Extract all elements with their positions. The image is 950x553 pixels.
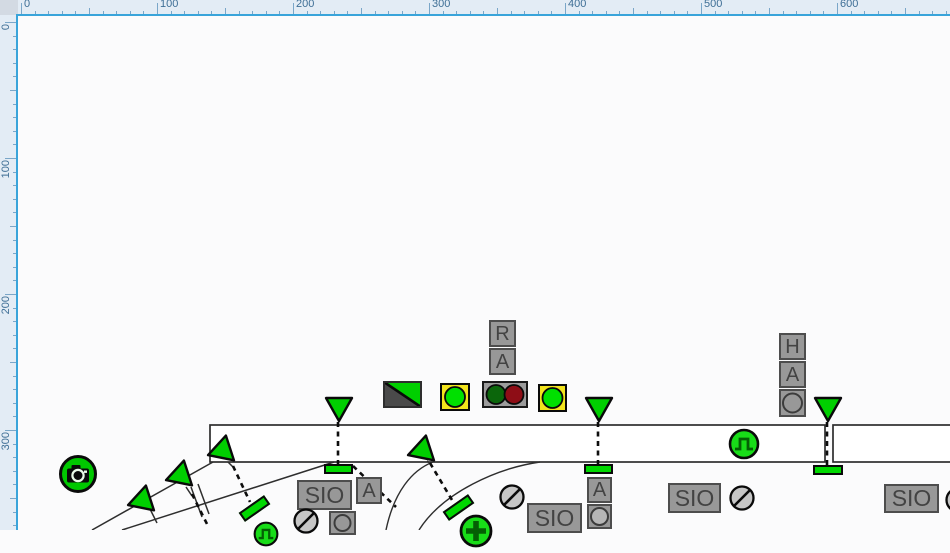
- signal-aspect-pair[interactable]: [482, 381, 528, 413]
- ruler-label: 0: [0, 24, 12, 30]
- label-box-a[interactable]: A: [356, 477, 382, 504]
- ruler-label: 300: [0, 432, 12, 450]
- indicator-circle-box[interactable]: [329, 511, 356, 535]
- label-box-text: H: [785, 337, 799, 357]
- route-bar[interactable]: [584, 464, 613, 474]
- sio-label-text: SIO: [675, 487, 715, 510]
- ruler-label: 400: [568, 0, 586, 10]
- triangle-icon: [584, 396, 614, 423]
- ruler-label: 500: [704, 0, 722, 10]
- label-box-text: R: [495, 324, 509, 344]
- label-box-a[interactable]: A: [779, 361, 806, 388]
- ruler-left: 0100200300: [0, 15, 17, 530]
- track-editor-stage: RAHAAASIOSIOSIOSIO 0100200300400500600 0…: [0, 0, 950, 530]
- shunt-disc-icon[interactable]: [729, 485, 755, 516]
- signal-triangle[interactable]: [324, 396, 354, 423]
- sio-label-box[interactable]: SIO: [884, 484, 939, 513]
- ruler-label: 600: [840, 0, 858, 10]
- ruler-label: 200: [296, 0, 314, 10]
- signal-triangle[interactable]: [813, 396, 843, 423]
- lamp-indicator[interactable]: [538, 384, 567, 417]
- ruler-label: 100: [160, 0, 178, 10]
- label-box-text: A: [496, 352, 509, 372]
- sio-label-text: SIO: [305, 484, 345, 507]
- shunt-disc-icon[interactable]: [293, 508, 319, 539]
- sio-label-text: SIO: [535, 507, 575, 530]
- sio-label-box[interactable]: SIO: [527, 503, 582, 533]
- label-box-r[interactable]: R: [489, 320, 516, 347]
- label-box-text: A: [786, 365, 799, 385]
- ruler-label: 300: [432, 0, 450, 10]
- triangle-icon: [813, 396, 843, 423]
- plus-button[interactable]: [459, 514, 493, 553]
- label-box-text: A: [362, 481, 375, 501]
- ruler-label: 200: [0, 296, 12, 314]
- sio-label-text: SIO: [892, 487, 932, 510]
- canvas-top-edge-highlight: [17, 14, 950, 16]
- circle-indicator-icon: [589, 506, 610, 527]
- circle-indicator-icon: [781, 391, 804, 415]
- signal-triangle[interactable]: [584, 396, 614, 423]
- ruler-label: 100: [0, 160, 12, 178]
- label-box-h[interactable]: H: [779, 333, 806, 360]
- lamp-indicator[interactable]: [440, 383, 470, 416]
- sio-label-box[interactable]: SIO: [668, 483, 721, 513]
- ruler-corner: [0, 0, 18, 15]
- indicator-circle-box[interactable]: [779, 389, 806, 417]
- ruler-top: 0100200300400500600: [18, 0, 950, 15]
- circle-indicator-icon: [331, 513, 354, 533]
- camera-icon[interactable]: [58, 454, 98, 499]
- shunt-disc-icon[interactable]: [945, 487, 950, 518]
- sio-label-box[interactable]: SIO: [297, 480, 352, 510]
- triangle-icon: [324, 396, 354, 423]
- track-lines-layer: [0, 0, 950, 530]
- route-bar[interactable]: [813, 465, 843, 475]
- canvas-left-edge-highlight: [16, 14, 18, 530]
- label-box-text: A: [593, 480, 606, 500]
- pulse-button[interactable]: [728, 428, 760, 465]
- split-state-indicator[interactable]: [383, 381, 422, 413]
- label-box-a[interactable]: A: [587, 477, 612, 503]
- indicator-circle-box[interactable]: [587, 504, 612, 529]
- route-bar[interactable]: [324, 464, 353, 474]
- label-box-a[interactable]: A: [489, 348, 516, 375]
- ruler-label: 0: [24, 0, 30, 10]
- shunt-disc-icon[interactable]: [499, 484, 525, 515]
- pulse-button[interactable]: [253, 521, 279, 552]
